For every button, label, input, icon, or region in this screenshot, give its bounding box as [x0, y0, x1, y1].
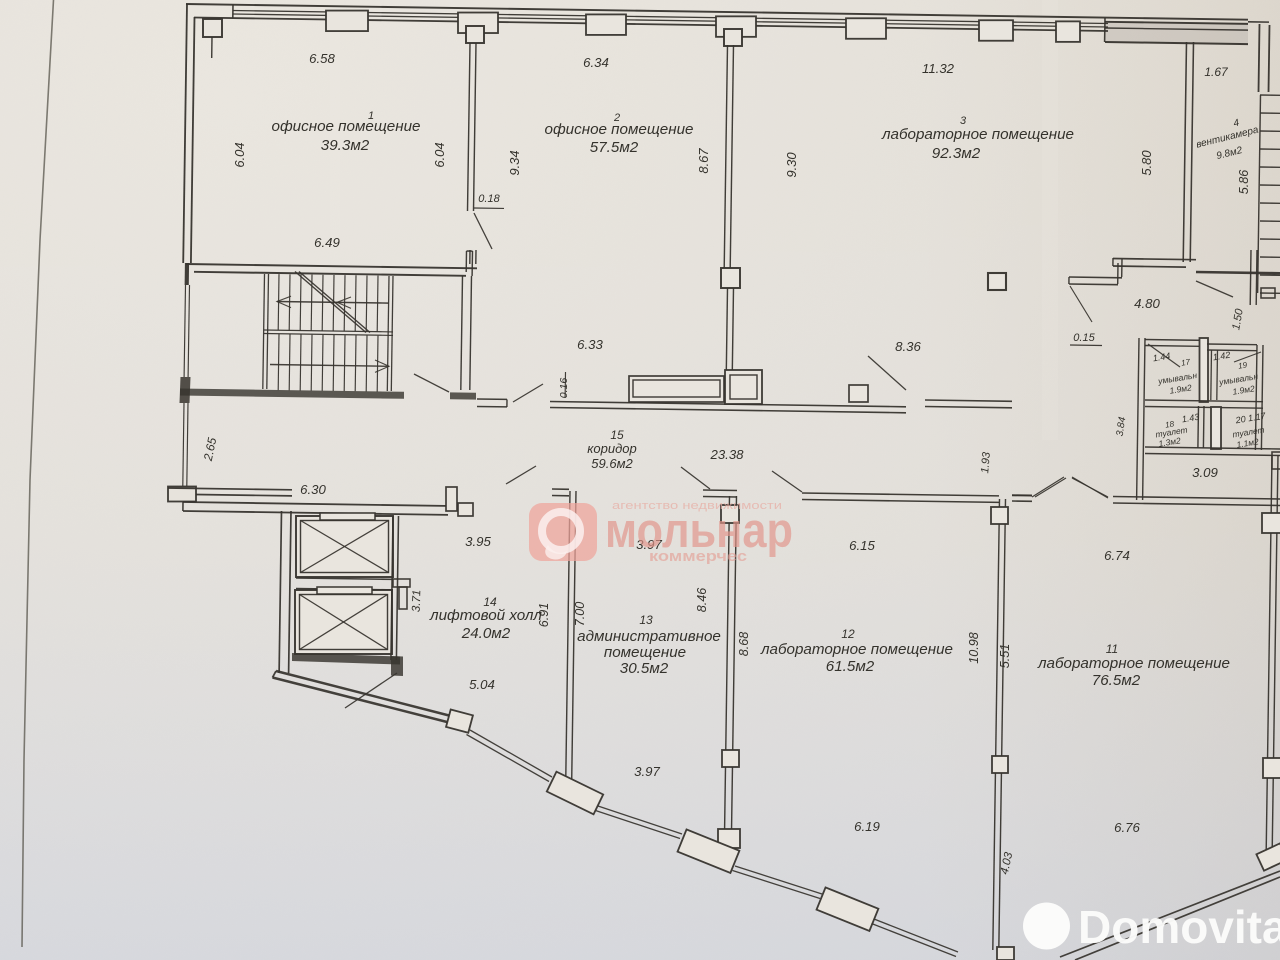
svg-text:23.38: 23.38 [709, 447, 744, 462]
svg-text:5.51: 5.51 [998, 644, 1012, 669]
svg-text:57.5м2: 57.5м2 [590, 139, 639, 156]
svg-text:коридор: коридор [587, 441, 636, 456]
svg-text:лифтовой холл: лифтовой холл [429, 607, 542, 624]
svg-text:39.3м2: 39.3м2 [321, 137, 370, 154]
svg-text:15: 15 [610, 428, 624, 442]
svg-text:7.00: 7.00 [573, 602, 587, 627]
svg-text:6.19: 6.19 [854, 819, 880, 834]
svg-text:30.5м2: 30.5м2 [620, 660, 669, 677]
svg-text:8.68: 8.68 [737, 632, 751, 657]
svg-text:6.49: 6.49 [314, 235, 340, 250]
svg-text:8.36: 8.36 [895, 339, 921, 354]
svg-text:0.15: 0.15 [1073, 332, 1095, 344]
svg-text:3.97: 3.97 [634, 764, 660, 779]
svg-text:6.33: 6.33 [577, 337, 603, 352]
svg-text:4.80: 4.80 [1134, 296, 1160, 311]
svg-text:офисное помещение: офисное помещение [272, 118, 421, 135]
svg-text:24.0м2: 24.0м2 [461, 625, 511, 642]
svg-text:1.93: 1.93 [979, 451, 993, 474]
svg-text:лабораторное помещение: лабораторное помещение [760, 641, 953, 658]
svg-text:12: 12 [841, 627, 855, 641]
svg-text:8.67: 8.67 [696, 148, 711, 174]
svg-text:помещение: помещение [604, 644, 686, 661]
svg-text:5.80: 5.80 [1139, 150, 1154, 176]
svg-text:лабораторное помещение: лабораторное помещение [881, 126, 1074, 143]
svg-text:5.04: 5.04 [469, 677, 495, 692]
svg-text:6.04: 6.04 [432, 142, 447, 167]
svg-text:6.34: 6.34 [583, 55, 609, 70]
svg-text:61.5м2: 61.5м2 [826, 658, 875, 675]
svg-text:3.71: 3.71 [411, 589, 424, 612]
svg-text:9.30: 9.30 [784, 152, 799, 178]
svg-text:5.86: 5.86 [1237, 170, 1251, 195]
svg-text:0.18: 0.18 [478, 193, 500, 205]
svg-text:6.76: 6.76 [1114, 820, 1140, 835]
svg-text:13: 13 [639, 613, 653, 627]
svg-text:6.04: 6.04 [232, 142, 247, 167]
svg-text:лабораторное помещение: лабораторное помещение [1037, 655, 1230, 672]
svg-text:административное: административное [577, 628, 721, 645]
svg-text:3.09: 3.09 [1192, 465, 1218, 480]
svg-text:11: 11 [1106, 642, 1118, 656]
svg-text:8.46: 8.46 [695, 588, 709, 613]
svg-text:1.67: 1.67 [1204, 65, 1229, 79]
svg-text:0.16: 0.16 [558, 378, 570, 399]
svg-text:6.15: 6.15 [849, 538, 875, 553]
svg-text:92.3м2: 92.3м2 [932, 145, 981, 162]
svg-text:76.5м2: 76.5м2 [1092, 672, 1141, 689]
svg-text:9.34: 9.34 [507, 150, 522, 175]
svg-text:6.91: 6.91 [537, 603, 551, 628]
svg-text:6.30: 6.30 [300, 482, 326, 497]
svg-text:офисное помещение: офисное помещение [545, 121, 694, 138]
svg-text:6.58: 6.58 [309, 51, 335, 66]
svg-text:3.95: 3.95 [465, 534, 491, 549]
svg-text:Domovita: Domovita [1078, 901, 1280, 953]
svg-text:59.6м2: 59.6м2 [591, 456, 633, 471]
svg-text:коммерчес: коммерчес [649, 548, 747, 565]
svg-text:6.74: 6.74 [1104, 548, 1130, 563]
svg-text:11.32: 11.32 [922, 61, 955, 76]
svg-text:10.98: 10.98 [967, 632, 981, 664]
